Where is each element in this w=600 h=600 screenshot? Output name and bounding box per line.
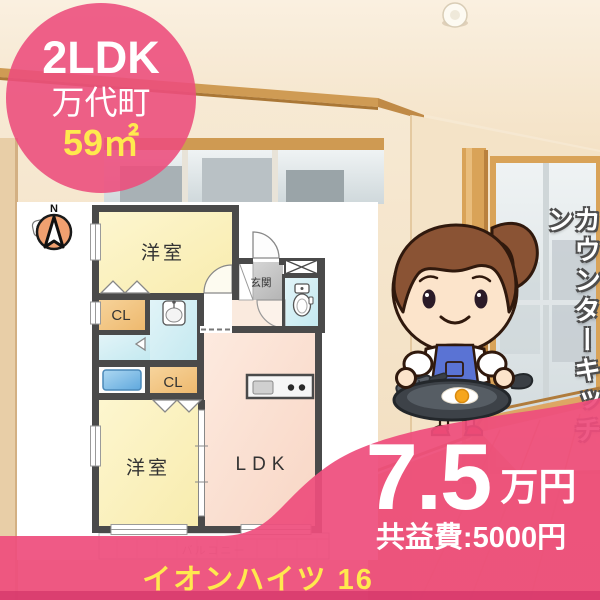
badge-town-name: 万代町 — [52, 83, 151, 123]
building-name-label: イオンハイツ 16 — [88, 556, 428, 598]
rent-unit: 万円 — [490, 456, 576, 519]
rent-amount: 7.5 — [366, 436, 491, 519]
listing-promo-image: バルコニー — [0, 0, 600, 600]
badge-floor-area: 59㎡ — [63, 123, 139, 163]
badge-layout-type: 2LDK — [42, 34, 160, 81]
common-fee-label: 共益費:5000円 — [340, 514, 600, 556]
price-banner: 7.5 万円 — [340, 436, 600, 519]
property-badge: 2LDK 万代町 59㎡ — [6, 3, 196, 193]
